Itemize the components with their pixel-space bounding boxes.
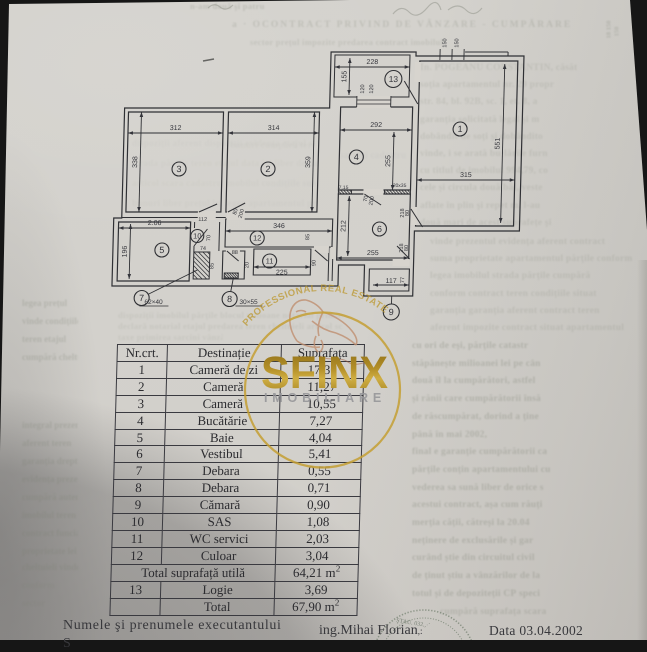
svg-text:PROFESSIONAL REAL ESTATE: PROFESSIONAL REAL ESTATE [241,283,391,328]
svg-text:IMOBILIARE: IMOBILIARE [264,390,386,405]
